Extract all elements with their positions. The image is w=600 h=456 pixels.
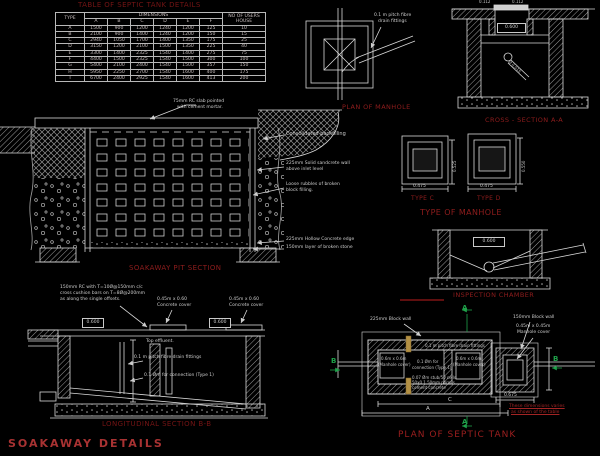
- plan-dim-0675: 0.675: [504, 394, 517, 399]
- soak-stone-note: 150mm layer of broken stone: [286, 246, 353, 251]
- long-slab-note-line3: as along the single offsets.: [60, 298, 121, 303]
- type-d-width-dim: 0.475: [480, 185, 493, 190]
- table-header-users: NO OF USERS HOUSE: [223, 13, 266, 26]
- inspection-chamber-drawing: [430, 230, 586, 289]
- plan-mh60b-note-line1: 0.6m x 0.6m: [456, 357, 481, 361]
- table-title: TABLE OF SEPTIC TANK DETAILS: [78, 1, 201, 9]
- long-cover1-note-line2: Concrete cover: [157, 304, 191, 309]
- long-cover2-note-line2: Concrete cover: [229, 304, 263, 309]
- plan-porous-note-line3: cement concrete: [412, 386, 446, 390]
- cover-dim-right: 0.112: [512, 0, 523, 4]
- section-marker-b-right: B: [553, 355, 558, 363]
- table-cell: 1540: [154, 75, 177, 81]
- soak-wall-note-line2: above inlet level: [286, 168, 323, 173]
- soak-slab-note-line2: with cement mortar.: [177, 106, 223, 111]
- plan-mh60b-note-line2: (Manhole cover): [453, 363, 486, 367]
- plan-pitch-note: 0.1 m pitch fibre drain fittings: [425, 344, 485, 348]
- inspection-chamber-caption: INSPECTION CHAMBER: [453, 291, 534, 299]
- plan-mh45-note-line2: Manhole cover: [517, 331, 550, 336]
- long-dim-right: 0.600: [209, 318, 231, 328]
- plan-of-septic-tank-caption: PLAN OF SEPTIC TANK: [398, 430, 516, 440]
- plan-wall225-note: 225mm Block wall: [370, 318, 411, 323]
- soak-rubble-note-line2: block filling.: [286, 189, 313, 194]
- type-d-caption: TYPE D: [477, 195, 501, 202]
- type-c-height-dim: 0.525: [453, 161, 457, 172]
- plan-red-note-line2: as shown of the table: [511, 410, 559, 415]
- red-line: [400, 299, 444, 301]
- cross-section-drawing: [452, 5, 595, 108]
- soakaway-details-title: SOAKAWAY DETAILS: [8, 437, 164, 450]
- plan-red-note-line1: These dimensions varies: [509, 404, 565, 409]
- neck-dim: 0.600: [497, 23, 526, 33]
- table-cell: 1600: [177, 75, 200, 81]
- section-marker-b-left: B: [331, 357, 336, 365]
- long-dim-left: 0.600: [82, 318, 104, 328]
- type-c-caption: TYPE C: [411, 195, 434, 202]
- inspection-chamber-dim: 0.600: [473, 237, 505, 247]
- long-connection-note: 0.1 Øm for connection (Type 1): [144, 374, 214, 379]
- plan-mh60a-note-line2: (Manhole cover): [378, 363, 411, 367]
- plan-connection-note-line2: connection (Type 1): [412, 366, 451, 370]
- plan-of-manhole-caption: PLAN OF MANHOLE: [342, 103, 411, 111]
- plan-wall150-note: 150mm Block wall: [513, 316, 554, 321]
- cross-section-caption: CROSS - SECTION A-A: [485, 116, 563, 124]
- table-header-type: TYPE: [56, 13, 85, 26]
- table-cell: 2400: [108, 75, 131, 81]
- type-c-width-dim: 0.475: [413, 185, 426, 190]
- soakaway-pit-caption: SOAKAWAY PIT SECTION: [129, 264, 221, 272]
- table-cell: 413: [200, 75, 223, 81]
- table-cell: I: [56, 75, 85, 81]
- type-of-manhole-caption: TYPE OF MANHOLE: [420, 208, 502, 217]
- plan-dim-a: A: [426, 406, 430, 412]
- type-d-height-dim: 0.550: [522, 161, 526, 172]
- soak-backfill-note: Consolidated backfilling: [286, 132, 346, 138]
- cad-drawing-canvas: TABLE OF SEPTIC TANK DETAILS TYPE DIMENS…: [0, 0, 600, 456]
- table-cell: 2925: [131, 75, 154, 81]
- manhole-pipe-note-line2: drain fittings: [378, 20, 407, 25]
- section-marker-a-bottom: A: [462, 418, 467, 426]
- septic-tank-table: TYPE DIMENSIONS NO OF USERS HOUSE A B C …: [55, 12, 266, 82]
- plan-dim-c: C: [448, 397, 452, 403]
- section-marker-a-top: A: [462, 304, 467, 312]
- plan-connection-note-line1: 0.1 Øm for: [417, 360, 438, 364]
- longitudinal-caption: LONGITUDINAL SECTION B-B: [102, 420, 211, 428]
- soak-edge-note: 225mm Hollow Concrete edge: [286, 238, 354, 243]
- cover-dim-left: 0.112: [479, 0, 490, 4]
- longitudinal-section-drawing: [28, 306, 268, 418]
- table-cell: 6700: [85, 75, 108, 81]
- table-row: I67002400292515401600413200: [56, 75, 266, 81]
- plan-mh60a-note-line1: 0.6m x 0.6m: [381, 357, 406, 361]
- long-pipe-note: 0.1 m pitch fibre drain fittings: [134, 356, 201, 361]
- long-effluent-note: Top effluent.: [146, 340, 174, 345]
- table-cell: 200: [223, 75, 266, 81]
